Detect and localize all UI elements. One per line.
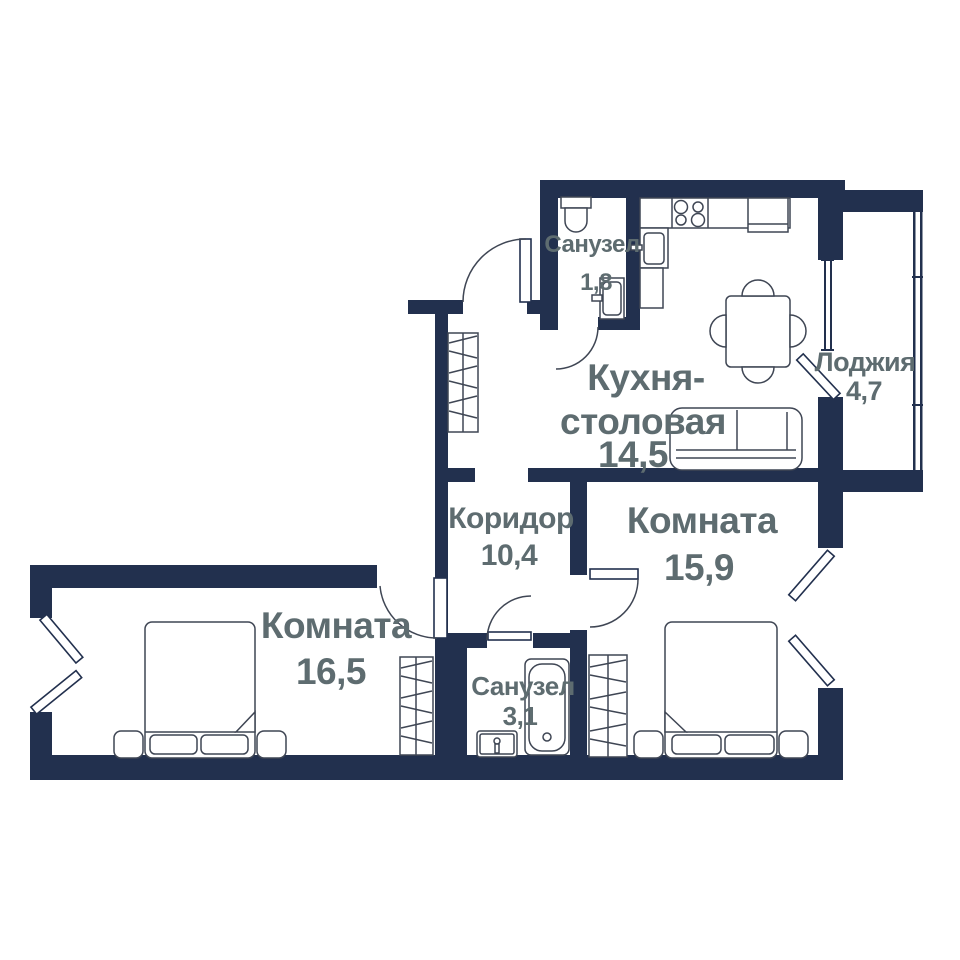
window-icon xyxy=(40,614,83,663)
wall xyxy=(30,565,377,588)
pillow xyxy=(150,735,197,754)
window-icon xyxy=(830,260,832,350)
chair-icon xyxy=(710,315,726,347)
pillow xyxy=(725,735,774,754)
window-icon xyxy=(789,635,834,685)
room-name: Лоджия xyxy=(815,347,916,377)
wall xyxy=(818,688,843,780)
chair-icon xyxy=(742,367,774,383)
nightstand-icon xyxy=(634,731,663,758)
wall xyxy=(467,633,487,648)
wall xyxy=(540,317,556,330)
room-area: 10,4 xyxy=(481,539,538,572)
wardrobe-icon xyxy=(589,655,627,757)
fridge-icon xyxy=(748,198,788,232)
door-arc-icon xyxy=(463,239,526,302)
nightstand-icon xyxy=(779,731,808,758)
pillow xyxy=(201,735,248,754)
room-area: 14,5 xyxy=(598,434,668,475)
chair-icon xyxy=(790,315,806,347)
window-icon xyxy=(31,671,82,714)
room-name: Комната xyxy=(261,605,412,646)
room-area: 1,8 xyxy=(580,269,612,296)
entrance-door xyxy=(463,239,531,302)
floor-plan-canvas: Санузел 1,8 Кухня- столовая 14,5 Лоджия … xyxy=(0,0,960,960)
window-icon xyxy=(912,276,923,278)
window-icon xyxy=(920,212,923,470)
room-name: Санузел xyxy=(544,231,639,258)
wall xyxy=(818,180,843,260)
window-icon xyxy=(818,688,843,690)
wall xyxy=(626,198,640,330)
door-arc-icon xyxy=(590,579,638,627)
wall xyxy=(818,482,843,548)
pillow xyxy=(672,735,721,754)
window-icon xyxy=(824,260,826,350)
room-area: 3,1 xyxy=(503,701,538,731)
wardrobe-icon xyxy=(400,657,433,755)
wall xyxy=(533,633,587,648)
window-icon xyxy=(912,404,923,406)
nightstand-icon xyxy=(114,731,143,758)
room-name: Санузел xyxy=(471,671,574,701)
door-leaf xyxy=(590,569,638,579)
window-icon xyxy=(30,712,52,714)
window-icon xyxy=(789,550,834,600)
nightstand-icon xyxy=(257,731,286,758)
dining-table-icon xyxy=(710,280,806,383)
room-area: 4,7 xyxy=(846,376,882,406)
room-name: Коридор xyxy=(448,502,574,535)
toilet-icon xyxy=(561,197,591,232)
room-area: 16,5 xyxy=(296,651,366,692)
floor-plan: Санузел 1,8 Кухня- столовая 14,5 Лоджия … xyxy=(0,0,960,960)
door-leaf xyxy=(434,578,447,638)
kitchen-counter xyxy=(640,268,663,308)
wall xyxy=(818,397,843,482)
washbasin-icon xyxy=(477,731,517,757)
room-name: Комната xyxy=(627,500,778,541)
wall xyxy=(30,565,52,618)
wall xyxy=(448,468,475,482)
door-leaf xyxy=(488,632,531,640)
room-name: Кухня- xyxy=(587,357,704,398)
room-area: 15,9 xyxy=(664,547,734,588)
wall xyxy=(540,180,845,198)
wardrobe-icon xyxy=(448,333,478,432)
room-right-door xyxy=(590,569,638,627)
window-icon xyxy=(818,546,843,548)
chair-icon xyxy=(742,280,774,296)
wall xyxy=(843,190,923,212)
bed-icon xyxy=(634,622,808,758)
bathroom-bottom-door xyxy=(487,596,531,640)
window-icon xyxy=(913,212,916,470)
door-leaf xyxy=(520,239,531,302)
window-icon xyxy=(821,259,834,261)
